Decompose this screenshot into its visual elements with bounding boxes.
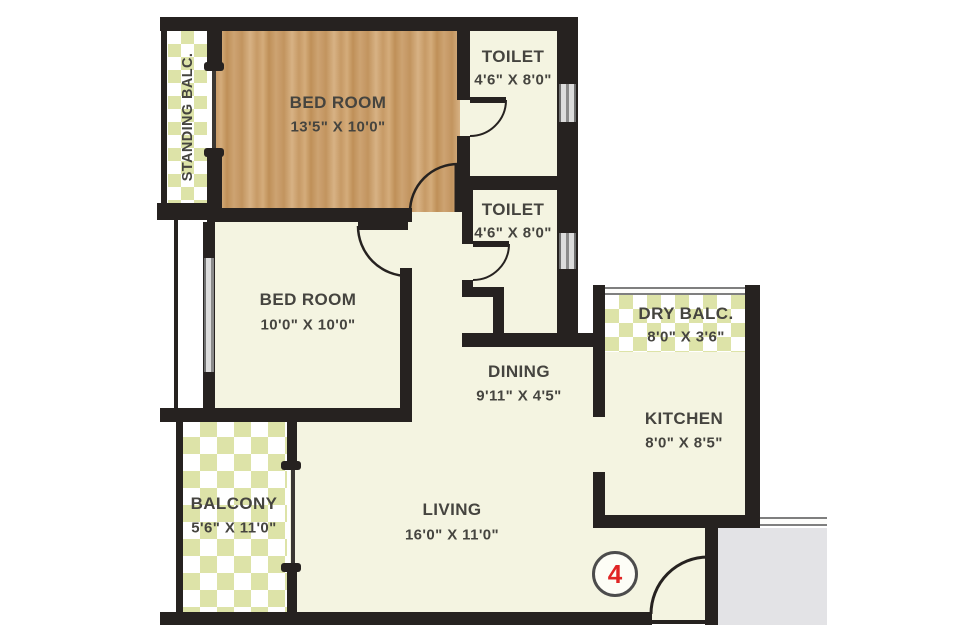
kitchen-label: KITCHEN — [645, 409, 723, 429]
dry-balcony-label: DRY BALC. — [638, 304, 733, 324]
wall-top — [160, 17, 578, 31]
dry-balcony-railing — [605, 287, 745, 295]
living-label: LIVING — [422, 500, 481, 520]
balcony-floor — [183, 420, 287, 616]
wall-kitchen-bottom — [593, 515, 760, 528]
wall-standing-balc-left — [161, 17, 167, 213]
floor-plan: STANDING BALC. BED ROOM 13'5" X 10'0" TO… — [0, 0, 957, 625]
toilet2-dims: 4'6" X 8'0" — [474, 225, 551, 242]
toilet1-dims: 4'6" X 8'0" — [474, 72, 551, 89]
bedroom2-window — [204, 258, 214, 372]
sliding-handle — [281, 461, 301, 470]
dry-balcony-dims: 8'0" X 3'6" — [647, 329, 724, 346]
exterior-corridor — [717, 528, 827, 625]
toilet2-label: TOILET — [482, 200, 545, 220]
bedroom1-label: BED ROOM — [290, 93, 387, 113]
wall-bottom — [160, 612, 652, 625]
entrance-threshold — [652, 620, 708, 624]
bedroom2-floor — [215, 222, 412, 408]
wall-bedroom1-toilet1-upper — [457, 17, 470, 100]
wall-toilet2-left-upper — [462, 190, 473, 244]
wall-toilet2-bottom — [462, 287, 504, 297]
kitchen-dims: 8'0" X 8'5" — [645, 435, 722, 452]
dining-label: DINING — [488, 362, 550, 382]
corridor-edge-line — [758, 517, 827, 526]
sliding-handle — [204, 148, 224, 157]
unit-number: 4 — [608, 559, 622, 590]
balcony-label: BALCONY — [191, 494, 278, 514]
bedroom2-label: BED ROOM — [260, 290, 357, 310]
wall-bedroom2-right — [400, 268, 412, 415]
bedroom2-dims: 10'0" X 10'0" — [261, 317, 356, 334]
wall-dining-top — [462, 333, 605, 347]
living-dims: 16'0" X 11'0" — [405, 527, 499, 544]
wall-kitchen-left-upper — [593, 285, 605, 417]
toilet1-label: TOILET — [482, 47, 545, 67]
toilet2-window — [559, 233, 576, 269]
standing-balcony-label: STANDING BALC. — [180, 53, 196, 182]
wall-bedroom2-bottom — [160, 408, 412, 422]
wall-balcony-right-upper — [287, 422, 297, 465]
sliding-handle — [204, 62, 224, 71]
wall-balcony-right-lower — [287, 572, 297, 616]
wall-toilet-divider — [457, 176, 557, 190]
sliding-handle — [281, 563, 301, 572]
wall-kitchen-right — [745, 285, 760, 528]
bedroom1-dims: 13'5" X 10'0" — [291, 119, 386, 136]
standing-balc-sliding-door — [212, 69, 216, 155]
balcony-dims: 5'6" X 11'0" — [191, 520, 276, 537]
toilet1-window — [559, 84, 576, 122]
unit-number-badge: 4 — [592, 551, 638, 597]
dining-dims: 9'11" X 4'5" — [476, 388, 561, 405]
wall-bedroom1-bottom — [207, 208, 412, 222]
wall-exterior-left-strip — [174, 220, 178, 422]
dining-floor — [412, 347, 605, 420]
wall-vestibule-right — [705, 528, 718, 625]
wall-balcony-left — [176, 422, 183, 616]
balcony-sliding-door — [291, 465, 295, 572]
wall-passage-stub — [493, 297, 504, 335]
wall-toilets-right — [557, 17, 578, 347]
